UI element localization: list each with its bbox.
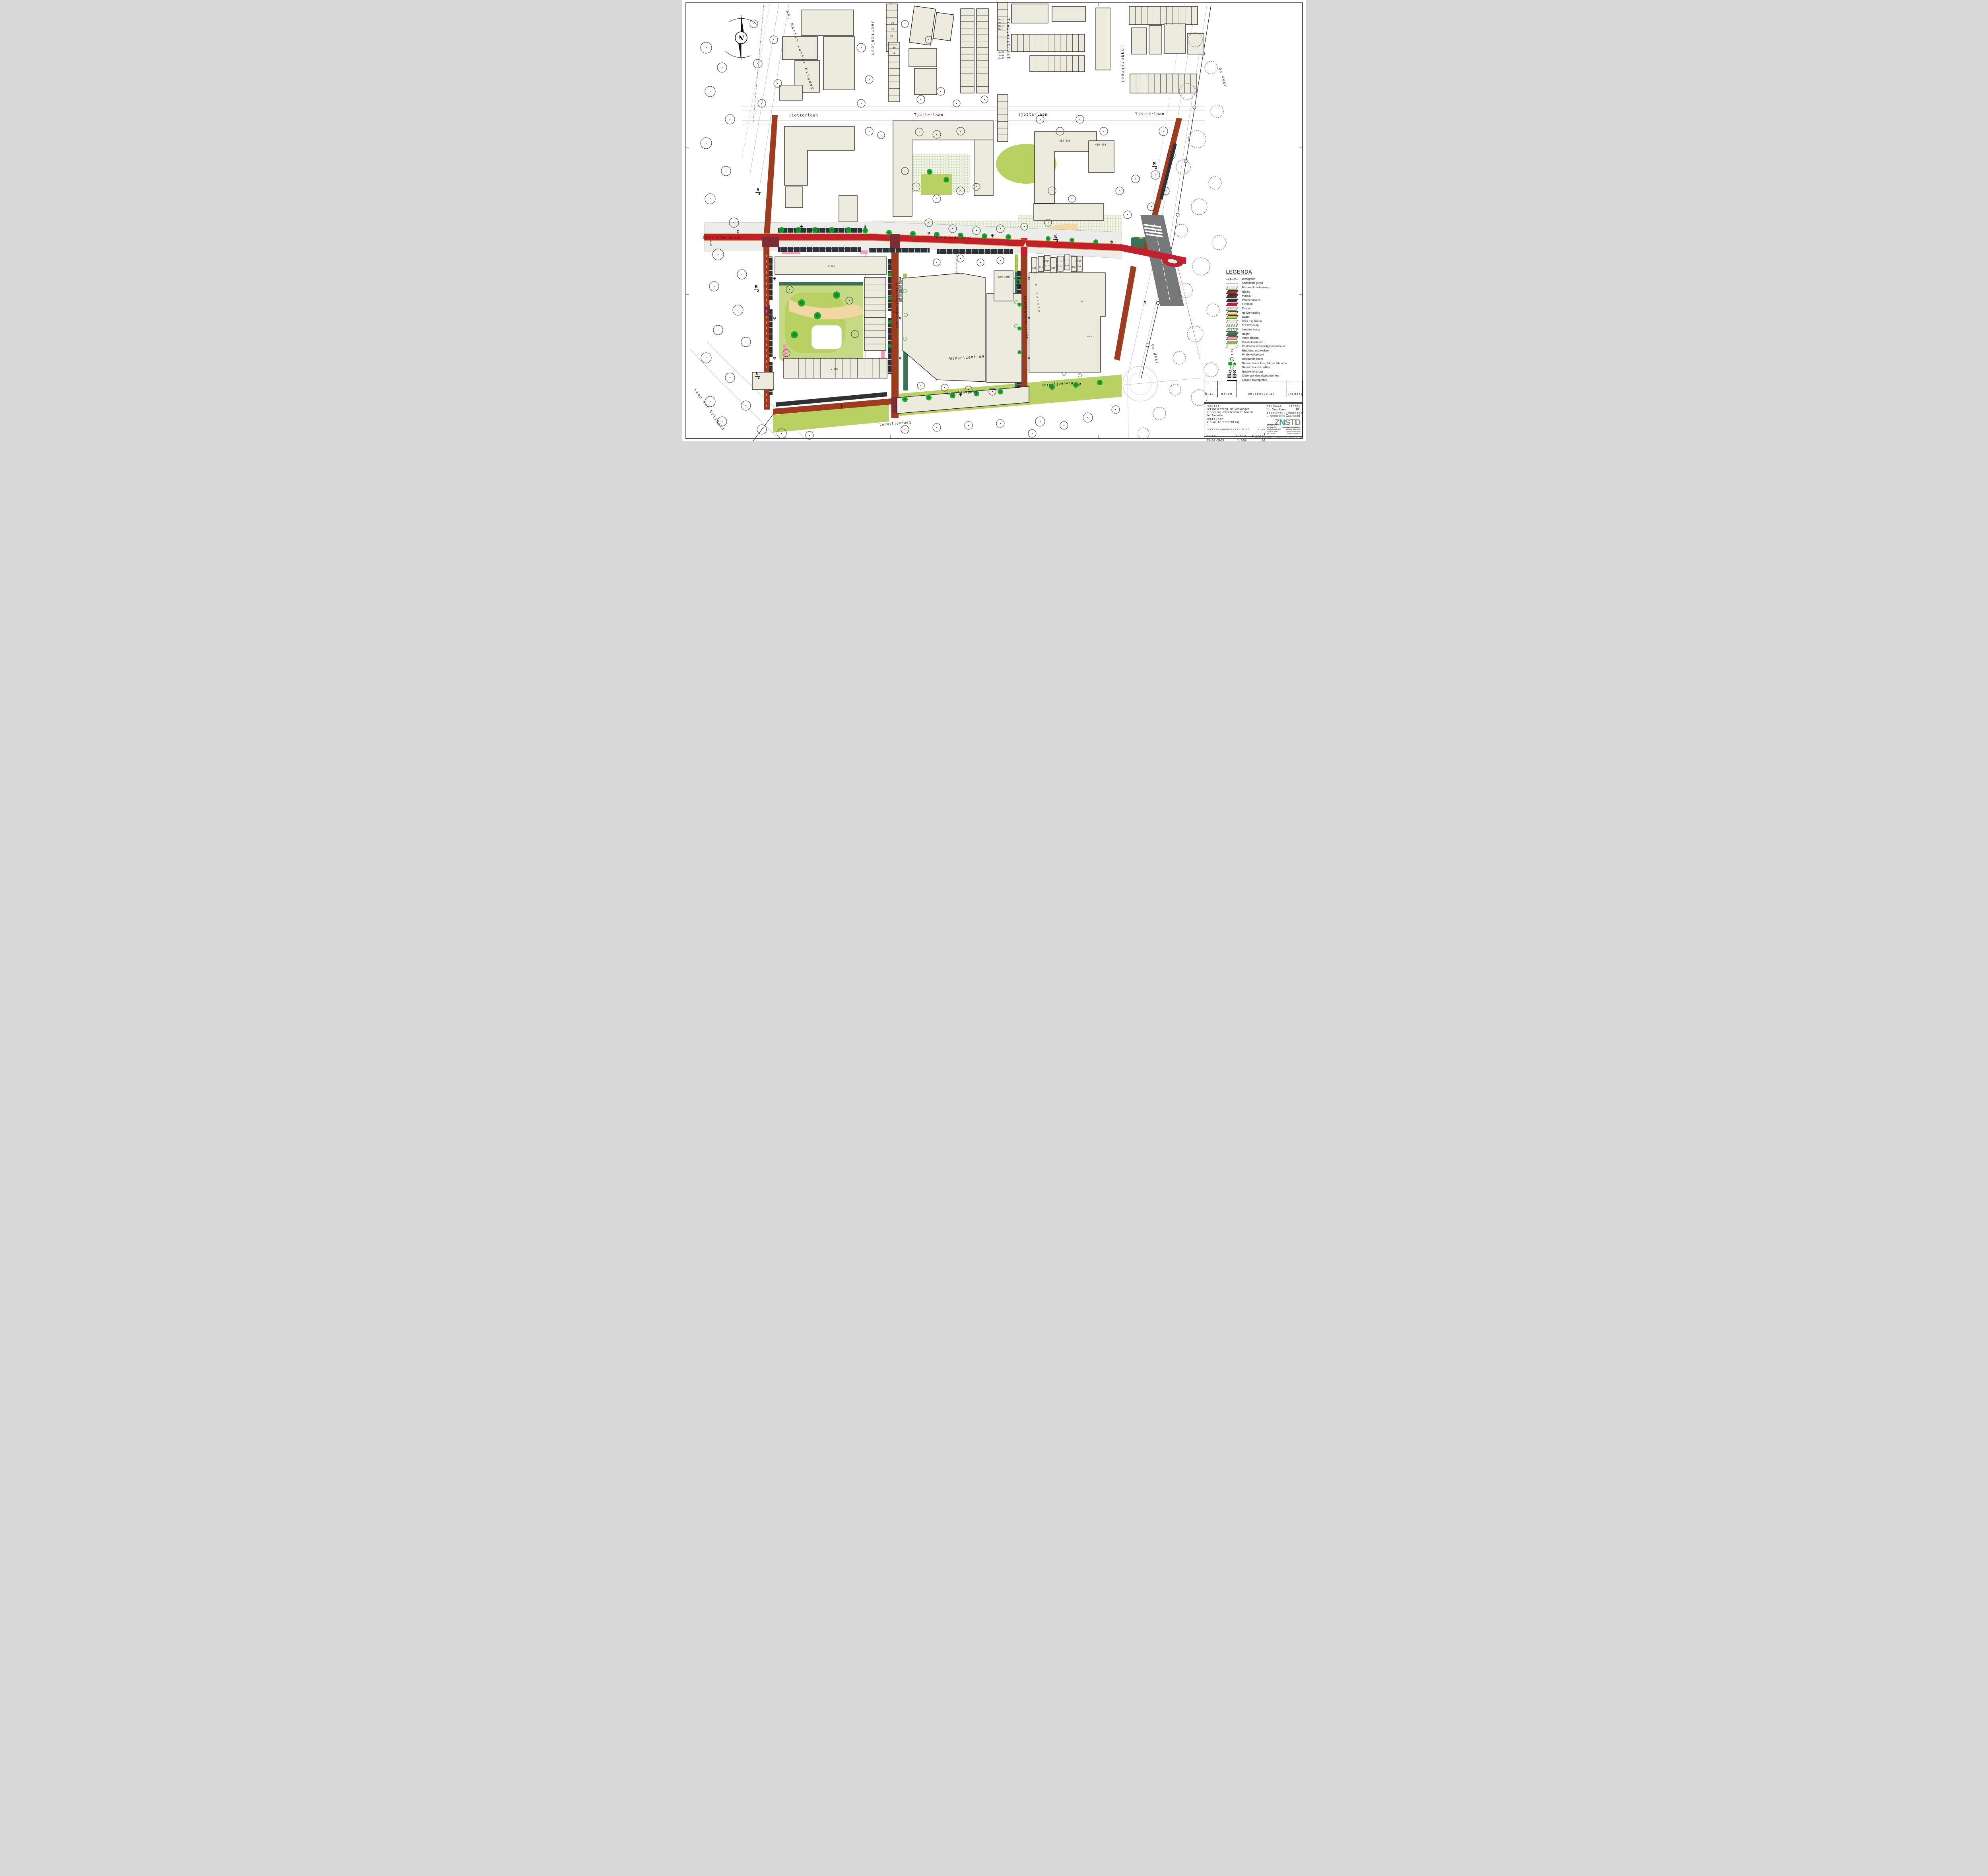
dimension-label: 5.80 [892, 311, 899, 314]
dimension-label: 4.00 [709, 241, 712, 247]
legend-swatch-bestaande-boom [1226, 357, 1238, 361]
revision-tekenaar: - [1287, 381, 1302, 391]
legend-swatch-vaste-planten [1226, 336, 1238, 340]
onderwerp-value: Nieuwe herinrichting [1207, 421, 1265, 424]
legend-swatch-afvalcontainers [1226, 374, 1238, 378]
small-label: inrit [1056, 260, 1062, 263]
legend-item: Gras ruig bloem [1226, 319, 1304, 324]
legend-panel: LEGENDA Werkgrens+Kadastrale grensBestaa… [1226, 269, 1304, 383]
street-label: Loggerstraat [1120, 45, 1125, 84]
legend-item: Ondergrondse afvalcontainers [1226, 374, 1304, 379]
legend-item-label: Kadastrale grens [1242, 282, 1263, 285]
legend-item: Parkeervakken [1226, 298, 1304, 303]
status-value: DO [1296, 408, 1301, 412]
small-label: deur [1087, 336, 1093, 338]
projectnummer-value: - [1267, 415, 1269, 418]
legend-item-label: Nieuwe boom 1ste, 2de en 3de orde [1242, 362, 1287, 365]
legend-swatch-gras-ruig [1226, 320, 1238, 323]
legend-swatch-heesters-hoog [1226, 328, 1238, 332]
house-number: 332 [1039, 266, 1043, 268]
legend-swatch-grasbeton [1226, 341, 1238, 344]
house-number: 352-428 [1059, 139, 1070, 142]
house-number: 18a/1 [998, 28, 1004, 31]
legend-item-label: Bestaande bebouwing [1242, 286, 1270, 289]
house-number: 344 [1077, 266, 1081, 268]
legend-title: LEGENDA [1226, 269, 1304, 275]
title-block: PROJECT Herinrichting en vervangen riole… [1204, 402, 1303, 437]
legend-swatch-fietspad: rood [1226, 303, 1238, 306]
house-number: 72 [1037, 300, 1039, 302]
blad-label: BLAD [1258, 429, 1266, 431]
legend-item-label: Contouren toekomstige nieuwbouw [1242, 345, 1285, 348]
house-number: 70 [1036, 296, 1039, 299]
legend-item: Nieuwe boom 1ste, 2de en 3de orde [1226, 361, 1304, 366]
legend-swatch-rijweg: bruin [1226, 290, 1238, 294]
house-number: 430-434 [1095, 143, 1106, 146]
legend-item-label: Nieuwe heester solitair [1242, 366, 1270, 369]
legend-item: Hagen [1226, 332, 1304, 336]
house-number: 18a/2 [998, 25, 1004, 27]
street-label: Tjotterlaan [1135, 112, 1165, 117]
small-label: inrit [1043, 260, 1049, 262]
legend-swatch-kadastrale: + [1226, 282, 1238, 285]
legend-swatch-trottoir: grijs [1226, 307, 1238, 311]
house-number: 76 [1037, 307, 1040, 309]
formaat-value: A0 [1252, 439, 1266, 441]
house-number: 18a/39 [997, 51, 1004, 54]
revision-wijz: - [1204, 381, 1218, 391]
legend-swatch-gazon [1226, 315, 1238, 319]
house-number: 340 [1064, 265, 1068, 267]
section-marker: M [1153, 161, 1155, 166]
house-number: 330 [1032, 267, 1036, 270]
legend-item: Grasbetonstenen [1226, 340, 1304, 345]
legend-item: rood/bruinPlateau [1226, 294, 1304, 298]
wijziging-label: WIJZIGING [1233, 429, 1250, 431]
legend-item: Vaste planten [1226, 336, 1304, 340]
house-number: 68 [1036, 293, 1038, 295]
section-marker: B [755, 284, 757, 289]
house-number: 338 [1058, 266, 1062, 268]
legend-swatch-hagen [1226, 332, 1238, 336]
house-number: 78 [1038, 310, 1040, 313]
house-number: 18a/38 [997, 54, 1004, 57]
tekenaar-value: J. Veenboer [1267, 408, 1287, 412]
legend-swatch-heester-solitair [1226, 366, 1238, 369]
section-marker: K [1054, 234, 1057, 239]
house-number: 18a/3 [998, 22, 1004, 24]
legend-item: Werkgrens [1226, 277, 1304, 282]
legend-item-label: Grasbetonstenen [1242, 341, 1264, 344]
north-label: N [738, 34, 744, 42]
legend-swatch-nieuwe-boom [1226, 362, 1238, 365]
svg-text:+: + [1231, 283, 1233, 285]
legend-swatch-bebouwing [1226, 286, 1238, 289]
project-title-line2: te Zaandam [1207, 414, 1265, 417]
legend-item-label: Hagen [1242, 333, 1250, 336]
legend-item-label: Vaste planten [1242, 337, 1259, 340]
house-number: 18 [890, 35, 893, 37]
schaal-value: 1:500 [1231, 439, 1252, 441]
house-number: 74 [1037, 303, 1039, 305]
legend-item-label: Rijweg [1242, 291, 1250, 293]
house-number: 16 [893, 47, 896, 49]
legend-item: bruinRijweg [1226, 290, 1304, 294]
legend-item-label: Fietspad [1242, 303, 1253, 306]
legend-item: +Kadastrale grens [1226, 282, 1304, 286]
house-number: 334 [1044, 265, 1049, 267]
street-label: Panneroodstraat [933, 235, 971, 240]
legend-item-label: Mindervalide oprit [1242, 353, 1264, 356]
small-label: deur [1080, 301, 1086, 303]
bureau-address: INGENIEURSBUREAU 1506MZ Zaandam 1500GA Z… [1278, 426, 1301, 435]
legend-swatch-oprit: ▼ [1226, 353, 1238, 357]
legend-item: heesters laag [1226, 324, 1304, 328]
house-number: 2-308 [827, 265, 835, 268]
datum-value: 15-09-2025 [1207, 439, 1231, 441]
house-number: 66 [1035, 284, 1037, 286]
street-label: Treilerstraat [1006, 18, 1010, 60]
revision-row: - - - - [1204, 381, 1302, 391]
legend-item: Contouren toekomstige nieuwbouw [1226, 345, 1304, 349]
house-number: 18a/37 [997, 57, 1004, 60]
house-number: 342 [1071, 266, 1075, 268]
legend-item-label: Gazon [1242, 316, 1250, 318]
small-label: inrit [1075, 260, 1081, 262]
legend-item-label: Ondergrondse afvalcontainers [1242, 375, 1279, 377]
house-number: 328A-328B [997, 276, 1010, 278]
legend-item-label: Plateau [1242, 295, 1252, 297]
section-marker: J [1017, 280, 1019, 285]
legend-item-label: heesters laag [1242, 324, 1259, 327]
legend-swatch-plateau: rood/bruin [1226, 294, 1238, 298]
legend-item: roodFietspad [1226, 303, 1304, 307]
house-number: 14 [892, 52, 895, 55]
street-label: Jachtenlaan [870, 21, 875, 56]
revision-headers: WIJZ. DATUM OMSCHRIJVING TEKENAAR [1204, 391, 1302, 397]
house-number: 64 [1034, 272, 1036, 274]
legend-item-label: Nieuwe lichtmast [1242, 371, 1263, 373]
house-number: 336 [1051, 267, 1055, 270]
revision-table: - - - - WIJZ. DATUM OMSCHRIJVING TEKENAA… [1204, 381, 1303, 397]
small-label: inrit [1063, 260, 1069, 262]
street-label: Tjotterlaan [1018, 113, 1048, 117]
legend-item-label: heesters hoog [1242, 328, 1260, 331]
legend-item-label: Bestaande boom [1242, 358, 1263, 361]
house-number: 22 [891, 22, 894, 25]
revision-omschrijving: - [1237, 381, 1287, 391]
legend-swatch-parkeervakken [1226, 299, 1238, 302]
street-label: Tjotterlaan [789, 113, 818, 118]
street-label: Tjotterlaan [914, 113, 944, 117]
legend-item: Nieuwe lichtmast [1226, 370, 1304, 374]
revision-datum: - [1218, 381, 1237, 391]
street-label: Vrieschgroenstraat [895, 282, 899, 328]
gemeente-zaanstad-logo-text: gemeente Zaanstad [1270, 414, 1300, 418]
legend-item-label: Halfverharding [1242, 312, 1260, 315]
legend-item: Halfverharding [1226, 311, 1304, 315]
legend-item-label: Gras ruig bloem [1242, 320, 1262, 323]
legend-swatch-werkgrens [1226, 278, 1238, 281]
legend-item-label: Werkgrens [1242, 278, 1256, 281]
legend-item-label: Parkeervakken [1242, 299, 1261, 302]
legend-swatch-rijrichting: ⇒⇐ [1226, 349, 1238, 353]
legend-items: Werkgrens+Kadastrale grensBestaande bebo… [1226, 277, 1304, 383]
map-canvas: N Ds. Martin Luther KingwegJachtenlaanTr… [682, 0, 1306, 441]
house-number: 18a/4 [998, 19, 1004, 21]
section-marker: C [755, 371, 758, 376]
legend-swatch-halfverharding [1226, 311, 1238, 315]
legend-item: grijsTrottoir [1226, 307, 1304, 311]
legend-swatch-lichtmast [1226, 370, 1238, 374]
project-title-line1: Herinrichting en vervangen riolering Kle… [1207, 408, 1265, 414]
plan-sheet: N Ds. Martin Luther KingwegJachtenlaanTr… [682, 0, 1306, 441]
house-number: 2-308 [831, 368, 838, 371]
legend-item: heesters hoog [1226, 328, 1304, 332]
legend-item: Bestaande bebouwing [1226, 285, 1304, 290]
house-number: 20 [891, 28, 894, 31]
legend-swatch-heesters-laag [1226, 324, 1238, 327]
legend-item-label: Rijrichting autoverkeer [1242, 350, 1270, 352]
street-label: Jacob Schoonebrug [702, 236, 742, 239]
legend-item: Bestaande boom [1226, 357, 1304, 361]
file-note: DO wegen Kleurenbuurt Noord (15-09-2025)… [1204, 437, 1303, 439]
tekeningnummer-label: TEKENINGNUMMER [1207, 429, 1233, 431]
legend-item-label: Trottoir [1242, 307, 1251, 310]
legend-item: Gazon [1226, 315, 1304, 319]
legend-item: ▼Mindervalide oprit [1226, 353, 1304, 357]
section-marker: A [756, 187, 759, 192]
legend-item: ⇒⇐Rijrichting autoverkeer [1226, 349, 1304, 353]
